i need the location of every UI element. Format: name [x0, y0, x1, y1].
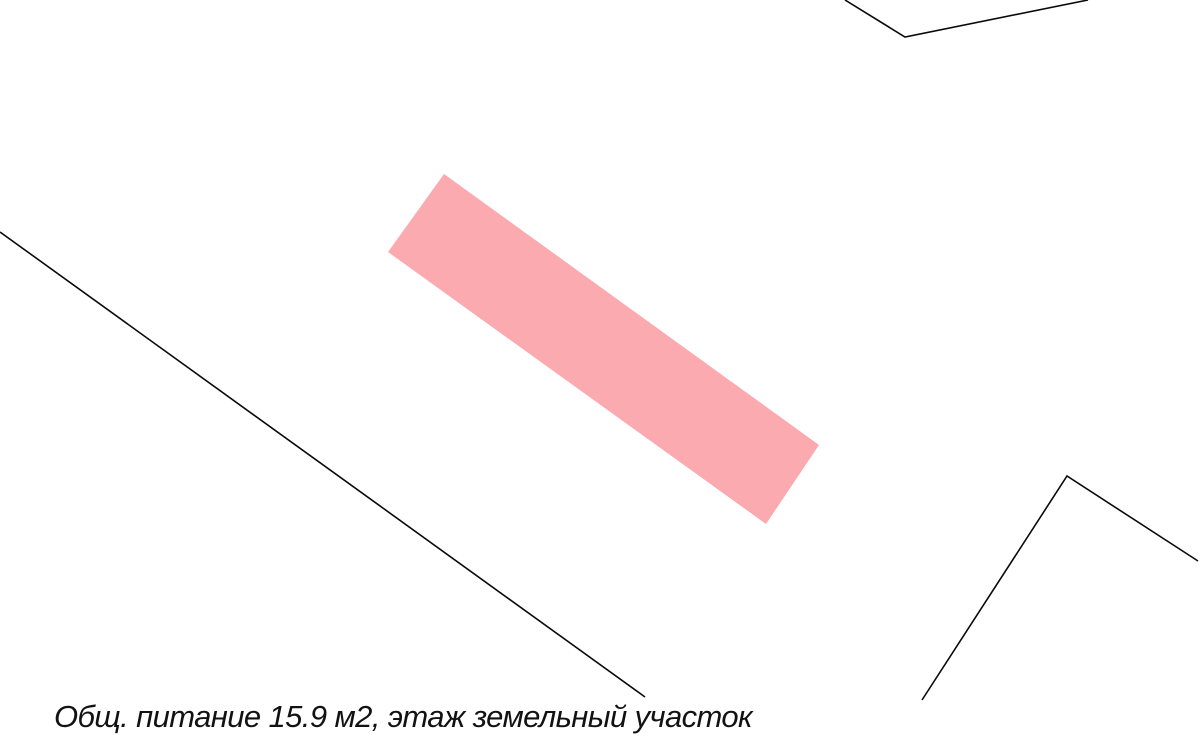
map-canvas[interactable]: Общ. питание 15.9 м2, этаж земельный уча… — [0, 0, 1200, 745]
building-info-label: Общ. питание 15.9 м2, этаж земельный уча… — [54, 699, 752, 735]
boundary-line-southeast — [922, 476, 1198, 700]
map-layer — [0, 0, 1200, 745]
boundary-line-northeast — [845, 0, 1088, 37]
building-footprint[interactable] — [388, 174, 819, 524]
